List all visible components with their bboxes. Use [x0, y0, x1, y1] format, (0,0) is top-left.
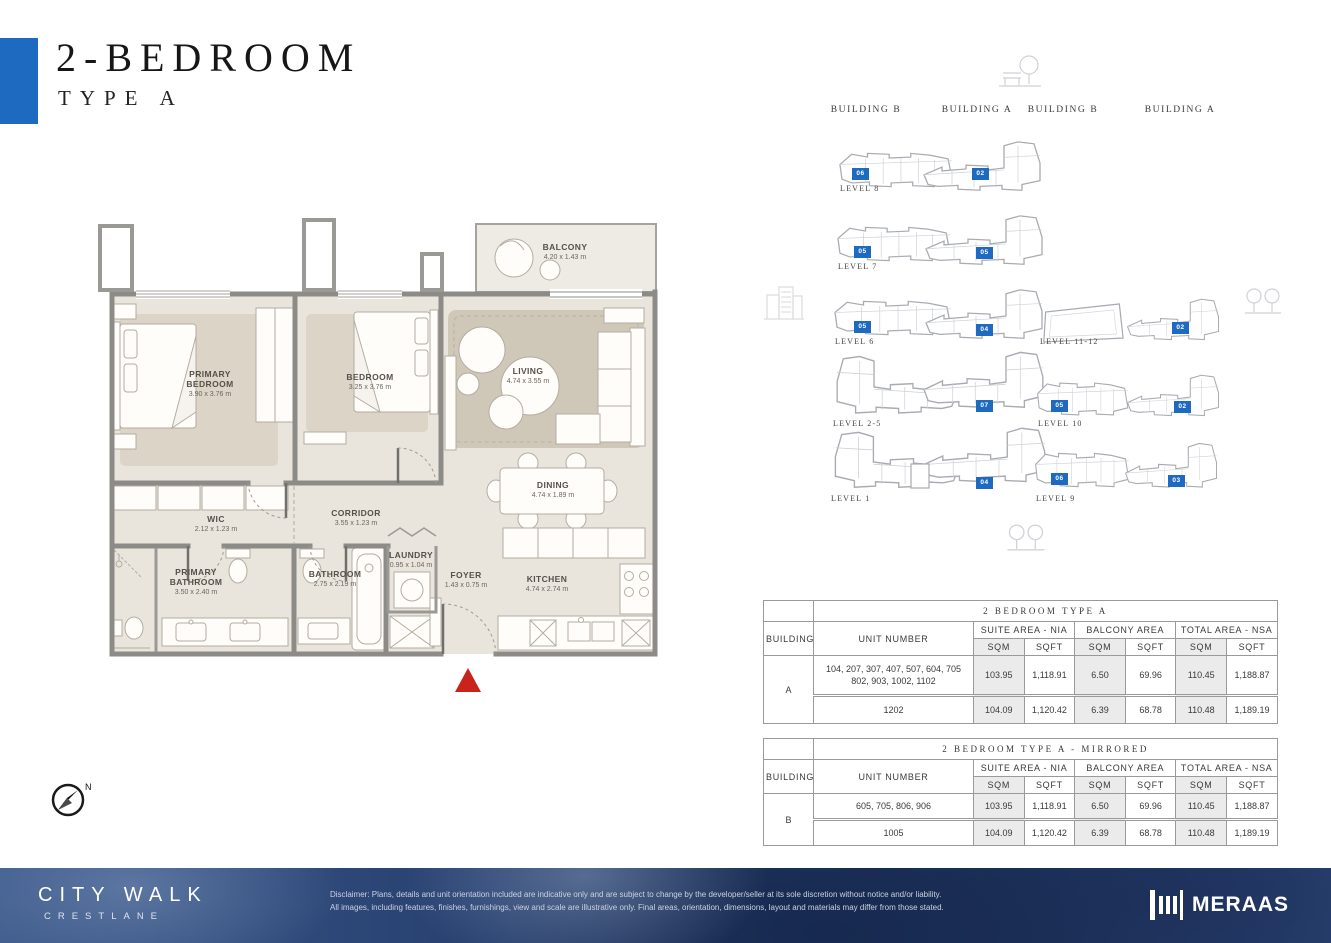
unit-numbers-cell: 605, 705, 806, 906	[814, 794, 974, 820]
unit-badge: 04	[976, 324, 993, 336]
page-subtitle: TYPE A	[58, 86, 184, 111]
accent-bar	[0, 38, 38, 124]
city-buildings-icon	[762, 283, 806, 323]
unit-badge: 02	[1172, 322, 1189, 334]
footer: CITY WALK CRESTLANE Disclaimer: Plans, d…	[0, 868, 1331, 943]
col-header-total-area: TOTAL AREA - NSA	[1176, 622, 1278, 639]
meraas-wordmark: MERAAS	[1192, 893, 1289, 917]
room-label-corridor: CORRIDOR3.55 x 1.23 m	[331, 509, 380, 527]
room-label-dining: DINING4.74 x 1.89 m	[532, 481, 574, 499]
trees-icon	[1243, 286, 1283, 316]
room-label-primary-bedroom: PRIMARY BEDROOM3.90 x 3.76 m	[186, 370, 233, 398]
room-label-bathroom: BATHROOM2.75 x 2.19 m	[309, 570, 362, 588]
svg-text:N: N	[85, 782, 92, 792]
room-label-laundry: LAUNDRY0.95 x 1.04 m	[389, 551, 433, 569]
entrance-marker-icon	[455, 668, 481, 692]
table-row: 1005 104.091,120.42 6.3968.78 110.481,18…	[764, 820, 1278, 846]
col-header-balcony-area: BALCONY AREA	[1075, 622, 1176, 639]
col-header-suite-area: SUITE AREA - NIA	[974, 622, 1075, 639]
floor-plan-drawing	[98, 216, 698, 708]
table-row: 1202 104.091,120.42 6.3968.78 110.481,18…	[764, 696, 1278, 724]
unit-badge: 05	[1051, 400, 1068, 412]
keyplan-building-b-level10	[1036, 376, 1131, 422]
level-label: LEVEL 6	[835, 337, 874, 346]
floor-plan: BALCONY4.20 x 1.43 m PRIMARY BEDROOM3.90…	[98, 216, 698, 708]
unit-numbers-cell: 104, 207, 307, 407, 507, 604, 705 802, 9…	[814, 656, 974, 696]
keyplan-annex-building	[909, 462, 931, 490]
keyplan-building-b-level9	[1034, 446, 1132, 494]
trees-icon	[1005, 522, 1047, 553]
compass-icon: N	[48, 778, 100, 826]
unit-badge: 06	[1051, 473, 1068, 485]
room-label-wic: WIC2.12 x 1.23 m	[195, 515, 237, 533]
unit-badge: 05	[854, 321, 871, 333]
col-header-balcony-area: BALCONY AREA	[1075, 760, 1176, 777]
level-label: LEVEL 10	[1038, 419, 1083, 428]
unit-badge: 05	[854, 246, 871, 258]
building-cell: A	[764, 656, 814, 724]
col-header-unit-number: UNIT NUMBER	[814, 760, 974, 794]
keyplan-building-a-level10	[1126, 372, 1224, 422]
unit-badge: 07	[976, 400, 993, 412]
room-label-living: LIVING4.74 x 3.55 m	[507, 367, 549, 385]
unit-badge: 05	[976, 247, 993, 259]
room-label-balcony: BALCONY4.20 x 1.43 m	[543, 243, 588, 261]
area-table-type-a: 2 BEDROOM TYPE A BUILDING UNIT NUMBER SU…	[763, 600, 1278, 724]
tree-bench-icon	[995, 52, 1045, 94]
unit-badge: 06	[852, 168, 869, 180]
col-header-building: BUILDING	[764, 760, 814, 794]
room-label-bedroom: BEDROOM3.25 x 3.76 m	[346, 373, 393, 391]
col-header-total-area: TOTAL AREA - NSA	[1176, 760, 1278, 777]
level-label: LEVEL 1	[831, 494, 870, 503]
keyplan-header-building-a-right: BUILDING A	[1122, 105, 1238, 115]
room-label-kitchen: KITCHEN4.74 x 2.74 m	[526, 575, 568, 593]
page-title: 2-BEDROOM	[56, 34, 361, 81]
unit-badge: 04	[976, 477, 993, 489]
table-title: 2 BEDROOM TYPE A - MIRRORED	[814, 739, 1278, 760]
level-label: LEVEL 7	[838, 262, 877, 271]
keyplan-header-building-b-left: BUILDING B	[808, 105, 924, 115]
keyplan-building-a-level7	[924, 212, 1049, 272]
table-row: A 104, 207, 307, 407, 507, 604, 705 802,…	[764, 656, 1278, 696]
unit-numbers-cell: 1202	[814, 696, 974, 724]
keyplan-building-a-level11-12	[1126, 296, 1224, 346]
unit-badge: 02	[972, 168, 989, 180]
col-header-suite-area: SUITE AREA - NIA	[974, 760, 1075, 777]
meraas-logo: MERAAS	[1148, 886, 1289, 924]
table-corner-cell	[764, 739, 814, 760]
building-cell: B	[764, 794, 814, 846]
col-header-unit-number: UNIT NUMBER	[814, 622, 974, 656]
room-label-primary-bathroom: PRIMARY BATHROOM3.50 x 2.40 m	[170, 568, 223, 596]
level-label: LEVEL 8	[840, 184, 879, 193]
level-label: LEVEL 2-5	[833, 419, 882, 428]
brand-city-walk: CITY WALK	[38, 884, 208, 907]
disclaimer-text: Disclaimer: Plans, details and unit orie…	[330, 889, 1050, 915]
area-table-type-a-mirrored: 2 BEDROOM TYPE A - MIRRORED BUILDING UNI…	[763, 738, 1278, 846]
level-label: LEVEL 11-12	[1040, 337, 1099, 346]
room-label-foyer: FOYER1.43 x 0.75 m	[445, 571, 487, 589]
unit-numbers-cell: 1005	[814, 820, 974, 846]
table-title: 2 BEDROOM TYPE A	[814, 601, 1278, 622]
level-label: LEVEL 9	[1036, 494, 1075, 503]
keyplan-header-building-b-right: BUILDING B	[1005, 105, 1121, 115]
unit-badge: 03	[1168, 475, 1185, 487]
meraas-bars-icon	[1148, 886, 1184, 924]
col-header-building: BUILDING	[764, 622, 814, 656]
table-row: B 605, 705, 806, 906 103.951,118.91 6.50…	[764, 794, 1278, 820]
unit-badge: 02	[1174, 401, 1191, 413]
keyplan-building-a-level6	[924, 286, 1049, 346]
brand-crestlane: CRESTLANE	[44, 911, 164, 922]
table-corner-cell	[764, 601, 814, 622]
